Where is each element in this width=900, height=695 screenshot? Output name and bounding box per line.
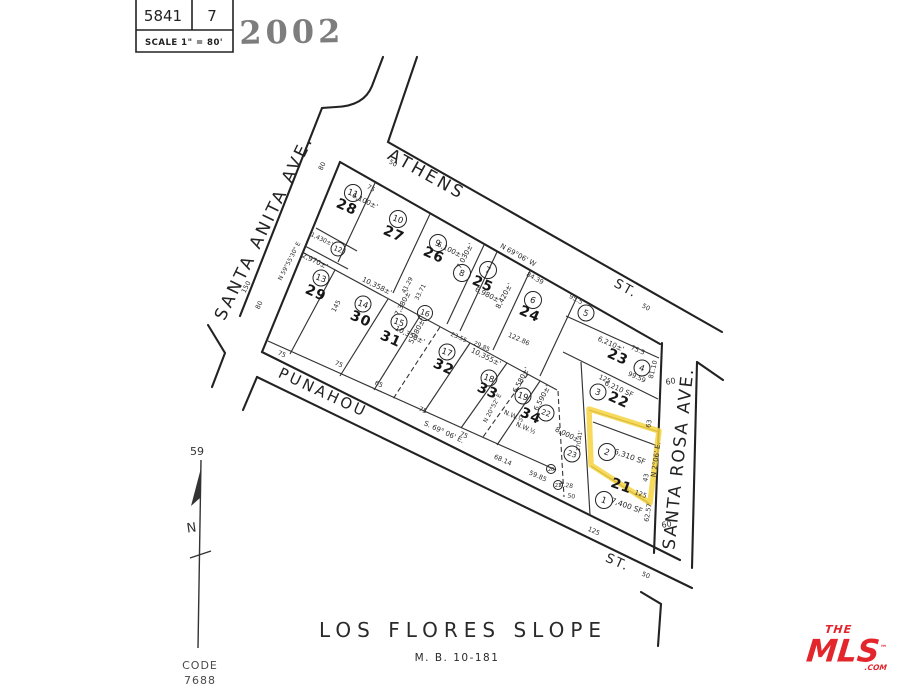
parcel-7: 7 — [480, 262, 497, 279]
mls-logo-word: MLS™ — [805, 635, 894, 664]
width-santa-anita-n: 80 — [317, 161, 328, 172]
street-label-athens-st: ST. — [611, 276, 640, 301]
area-parcel-2: 6,310 SF — [613, 447, 647, 467]
code-value: 7688 — [184, 674, 216, 687]
lot-numbers: 28 27 26 25 24 23 22 21 29 30 31 32 33 3… — [303, 196, 635, 498]
bearing-punahou: S. 69° 06' E. — [423, 419, 466, 445]
mls-logo-tm: ™ — [879, 644, 887, 652]
dim-75-a: 75 — [276, 349, 287, 360]
dim-62-57: 62.57 — [642, 503, 653, 523]
bearing-santa-rosa: N 2°06' E. — [650, 442, 663, 478]
dim-84-39: 84.39 — [525, 270, 545, 286]
parcel-12: 12 — [331, 242, 345, 256]
dim-170-41: 170.41' — [576, 430, 584, 451]
parcel-number-2: 2 — [602, 447, 611, 458]
dim-75-b: 75 — [333, 359, 344, 370]
street-label-bottom-st: ST. — [603, 551, 632, 575]
dim-43: 43 — [641, 473, 650, 483]
dim-81-10: 81.10 — [647, 360, 659, 380]
north-ref-number: 59 — [190, 445, 204, 458]
parcel-20: 20 — [547, 465, 556, 474]
parcel-2: 2 — [599, 444, 616, 461]
dim-68-14: 68.14 — [493, 453, 513, 468]
subdivision-title: LOS FLORES SLOPE M. B. 10-181 — [319, 618, 607, 664]
title-block: 5841 7 SCALE 1" = 80' — [136, 0, 233, 52]
north-arrow-head — [191, 468, 201, 506]
dim-75-c: 75 — [417, 405, 428, 416]
plat-map-page: 5841 7 SCALE 1" = 80' 2002 — [0, 0, 900, 695]
width-santa-rosa-n: 60 — [665, 376, 677, 387]
parcel-number-16: 16 — [419, 307, 431, 319]
dim-50: 50 — [567, 492, 576, 500]
mls-logo: THE MLS™ .COM — [803, 625, 896, 689]
plat-map: 5841 7 SCALE 1" = 80' 2002 — [0, 0, 900, 695]
map-book-ref: M. B. 10-181 — [415, 652, 500, 664]
width-bottom-st: 50 — [640, 570, 651, 581]
parcel-number-1: 1 — [599, 495, 608, 506]
width-santa-anita-s: 80 — [254, 300, 265, 311]
subdivision-name: LOS FLORES SLOPE — [319, 618, 607, 642]
north-letter: N — [186, 520, 198, 536]
dim-95-5: 95.5 — [568, 292, 585, 306]
parcel-number-3: 3 — [593, 387, 602, 398]
dim-33-71: 33.71 — [414, 283, 428, 302]
sheet-number: 5841 — [144, 7, 182, 25]
dim-59-85: 59.85 — [528, 469, 548, 484]
north-arrow: 59 N — [186, 445, 211, 648]
dim-125-b: 125 — [633, 488, 647, 500]
street-widths: 50 50 80 80 60 60 50 — [254, 158, 677, 581]
dim-63: 63 — [644, 419, 653, 429]
dim-99-59: 99.59 — [627, 370, 647, 385]
lot-number-21: 21 — [609, 475, 635, 497]
parcel-6: 6 — [525, 292, 542, 309]
year-stamp: 2002 — [239, 12, 345, 52]
parcel-14: 14 — [355, 296, 371, 312]
area-parcel-12: 1,430±' — [309, 231, 334, 248]
width-santa-rosa-s: 60 — [661, 519, 673, 530]
parcel-18: 18 — [481, 370, 497, 386]
code-label: CODE — [182, 659, 218, 672]
dim-75-5: 75.5 — [630, 344, 646, 357]
parcel-5: 5 — [578, 305, 594, 321]
parcel-10: 10 — [390, 211, 407, 228]
parcel-number-7: 7 — [483, 265, 492, 276]
dim-122-86: 122.86 — [507, 331, 531, 348]
parcel-number-20: 20 — [548, 467, 554, 473]
parcel-13: 13 — [313, 270, 329, 286]
area-lot-29: 2,970±' — [301, 252, 330, 271]
parcel-number-5: 5 — [581, 308, 590, 319]
width-athens-e: 50 — [640, 302, 651, 313]
parcel-1: 1 — [596, 492, 613, 509]
code-block: CODE 7688 — [182, 659, 218, 687]
parcel-number-6: 6 — [528, 295, 537, 306]
dim-41-29: 41.29 — [401, 276, 415, 295]
dim-125-c: 125 — [587, 525, 602, 537]
dim-145: 145 — [330, 299, 343, 314]
page-number: 7 — [207, 7, 217, 25]
dim-23-55: 23.55 — [449, 331, 468, 344]
street-label-santa-anita: SANTA ANITA AVE. — [211, 132, 318, 324]
map-scale: SCALE 1" = 80' — [145, 38, 223, 48]
parcel-17: 17 — [439, 344, 455, 360]
